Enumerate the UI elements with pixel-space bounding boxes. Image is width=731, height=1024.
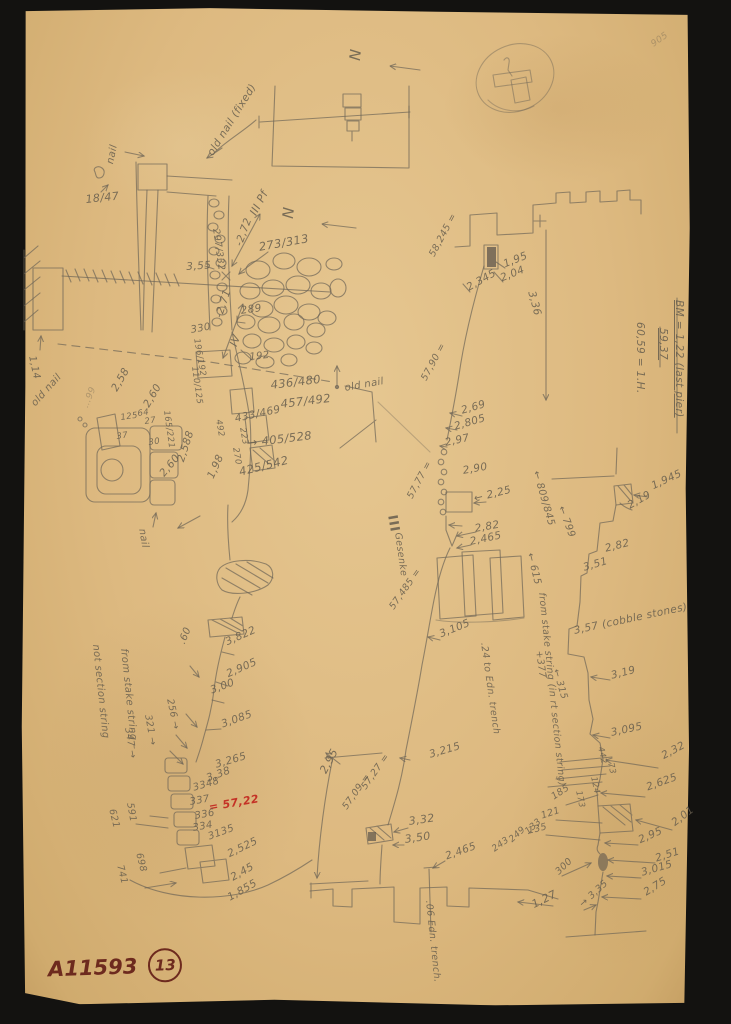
- plate-number-circle: 13: [148, 948, 183, 983]
- paper-sheet: [20, 6, 693, 1009]
- paper-stain: [82, 66, 282, 227]
- paper-stain: [442, 33, 672, 184]
- paper-stain: [510, 697, 721, 968]
- paper-stain: [44, 596, 315, 927]
- plate-number: 13: [155, 956, 176, 975]
- scan-background: Nold nail (fixed)nail18/47NIII Pf-2,7229…: [0, 0, 731, 1024]
- catalog-id: A11593: [48, 954, 138, 981]
- catalog-number: A11593 13: [47, 948, 182, 987]
